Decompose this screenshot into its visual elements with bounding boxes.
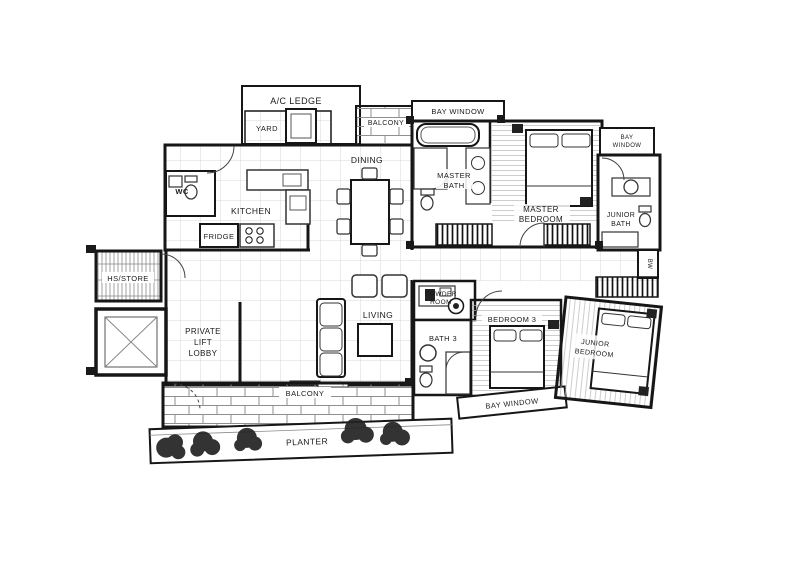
bath3-toilet-icon xyxy=(420,373,432,387)
bedside-table-icon xyxy=(646,309,657,319)
wardrobe-icon xyxy=(596,277,658,297)
balcony-top-label: BALCONY xyxy=(368,120,404,127)
balcony-top: BALCONY xyxy=(356,106,416,145)
bedside-table-icon xyxy=(512,124,523,133)
fridge-label: FRIDGE xyxy=(204,232,235,241)
junior-sink-icon xyxy=(624,180,638,194)
living-label: LIVING xyxy=(363,310,393,320)
ac-ledge: A/C LEDGE YARD xyxy=(242,86,360,144)
floor-plan-page: A/C LEDGE YARD BALCONY WC KITCHEN FRIDGE xyxy=(0,0,800,566)
bedside-table-icon xyxy=(638,386,649,396)
master-suite: BAY WINDOW MASTER BATH MASTER BEDROOM xyxy=(412,101,602,247)
bw-label: BW xyxy=(646,259,652,269)
powder-room-label-2: ROOM xyxy=(430,299,452,306)
kitchen-counter xyxy=(247,170,308,190)
lobby-label-3: LOBBY xyxy=(189,349,218,358)
ac-ledge-label: A/C LEDGE xyxy=(270,96,322,106)
wardrobe-icon xyxy=(544,224,590,245)
wc-room: WC xyxy=(166,171,215,216)
floor-plan-canvas: A/C LEDGE YARD BALCONY WC KITCHEN FRIDGE xyxy=(0,0,800,566)
lobby-label-2: LIFT xyxy=(194,338,212,347)
junior-bay-window xyxy=(600,128,654,155)
master-bedroom-label-2: BEDROOM xyxy=(519,215,563,224)
hs-store-label: HS/STORE xyxy=(107,274,148,283)
yard-label: YARD xyxy=(256,124,278,133)
master-bay-window-label: BAY WINDOW xyxy=(431,107,485,116)
bedroom3: BEDROOM 3 BAY WINDOW xyxy=(457,291,567,419)
dining-table-icon xyxy=(351,180,389,244)
bath3: BATH 3 xyxy=(414,320,471,395)
junior-bay-window-label-1: BAY xyxy=(621,135,634,141)
coffee-table-icon xyxy=(358,324,392,356)
master-bath-label-1: MASTER xyxy=(437,171,471,180)
bath3-shower-icon xyxy=(446,352,470,394)
wardrobe-icon xyxy=(436,224,492,245)
bedroom3-label: BEDROOM 3 xyxy=(488,315,537,324)
lobby-label-1: PRIVATE xyxy=(185,327,221,336)
junior-bath-label-1: JUNIOR xyxy=(607,212,635,219)
balcony-bottom-label: BALCONY xyxy=(286,389,325,398)
stove-icon xyxy=(240,224,274,247)
bath3-sink-icon xyxy=(420,345,436,361)
wc-label: WC xyxy=(175,187,188,196)
master-toilet-icon xyxy=(421,196,433,210)
dining-label: DINING xyxy=(351,155,383,165)
master-bedroom-label-1: MASTER xyxy=(523,205,559,214)
junior-bay-window-label-2: WINDOW xyxy=(613,143,642,149)
junior-shower-icon xyxy=(602,232,638,247)
master-bath-label-2: BATH xyxy=(443,181,464,190)
bedside-table-icon xyxy=(548,320,559,329)
lift-shaft xyxy=(96,309,166,375)
powder-room: POWDER ROOM xyxy=(414,281,475,320)
kitchen-label: KITCHEN xyxy=(231,206,271,216)
junior-bath-label-2: BATH xyxy=(611,221,631,228)
powder-room-label-1: POWDER xyxy=(425,291,457,298)
armchair-icon xyxy=(352,275,377,297)
bath3-label: BATH 3 xyxy=(429,334,457,343)
bedside-table-icon xyxy=(580,197,591,206)
junior-toilet-icon xyxy=(640,214,651,227)
corridor-floor xyxy=(412,247,658,281)
planter-label: PLANTER xyxy=(286,436,328,447)
armchair-icon xyxy=(382,275,407,297)
